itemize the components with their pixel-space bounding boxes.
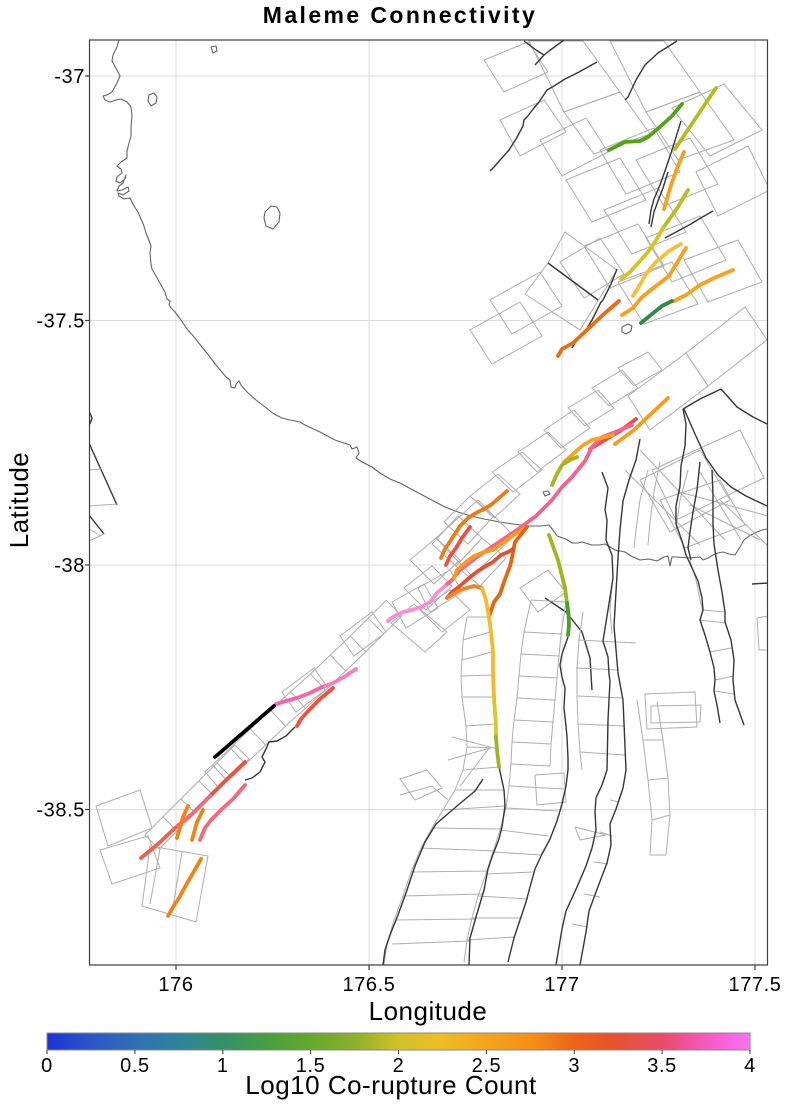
svg-text:176: 176 [158, 974, 193, 996]
svg-text:Latitude: Latitude [4, 452, 34, 549]
svg-text:Longitude: Longitude [369, 996, 488, 1026]
svg-text:176.5: 176.5 [342, 974, 395, 996]
svg-text:0: 0 [41, 1055, 53, 1077]
svg-text:177: 177 [544, 974, 579, 996]
svg-text:0.5: 0.5 [120, 1055, 150, 1077]
svg-text:3.5: 3.5 [647, 1055, 677, 1077]
svg-text:Log10 Co-rupture Count: Log10 Co-rupture Count [245, 1070, 537, 1100]
svg-text:3: 3 [568, 1055, 580, 1077]
svg-text:4: 4 [744, 1055, 756, 1077]
svg-text:-37.5: -37.5 [36, 311, 85, 333]
svg-text:-38: -38 [54, 555, 85, 577]
svg-text:Maleme Connectivity: Maleme Connectivity [263, 2, 537, 28]
svg-text:-37: -37 [54, 66, 85, 88]
svg-text:-38.5: -38.5 [36, 800, 85, 822]
svg-text:1: 1 [217, 1055, 229, 1077]
svg-text:177.5: 177.5 [728, 974, 781, 996]
